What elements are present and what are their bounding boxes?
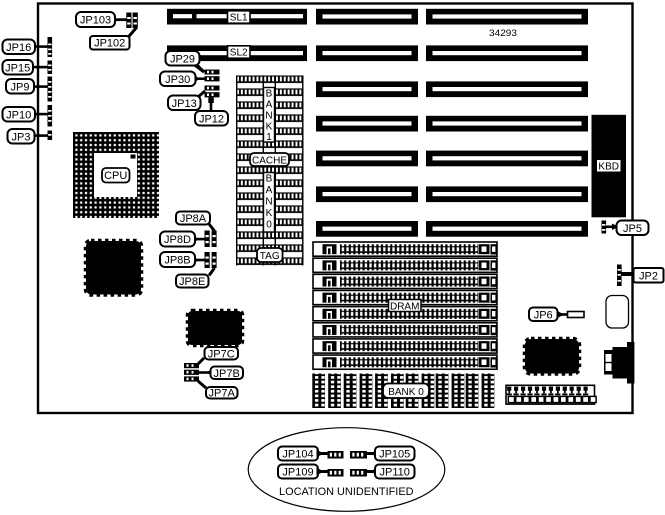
svg-text:34293: 34293	[489, 28, 517, 39]
svg-text:A: A	[266, 100, 273, 111]
svg-text:1: 1	[266, 132, 272, 143]
svg-text:JP5: JP5	[623, 223, 642, 235]
svg-text:JP8A: JP8A	[180, 213, 207, 225]
svg-text:SL2: SL2	[230, 48, 248, 59]
svg-text:DRAM: DRAM	[390, 301, 419, 312]
svg-text:JP8E: JP8E	[179, 276, 205, 288]
svg-text:JP104: JP104	[282, 449, 313, 461]
svg-text:JP110: JP110	[380, 467, 410, 479]
svg-text:KBD: KBD	[598, 162, 619, 173]
svg-text:A: A	[266, 185, 273, 196]
svg-text:LOCATION UNIDENTIFIED: LOCATION UNIDENTIFIED	[279, 486, 414, 498]
svg-text:JP2: JP2	[639, 270, 658, 282]
svg-text:K: K	[266, 208, 273, 219]
svg-text:JP15: JP15	[5, 62, 30, 74]
svg-text:TAG: TAG	[260, 251, 280, 262]
svg-text:JP29: JP29	[170, 53, 195, 65]
svg-text:JP9: JP9	[11, 81, 30, 93]
svg-text:BANK 0: BANK 0	[388, 387, 424, 398]
svg-text:JP103: JP103	[80, 15, 111, 27]
svg-text:B: B	[266, 174, 273, 185]
svg-text:CACHE: CACHE	[252, 155, 287, 166]
svg-text:JP8B: JP8B	[164, 255, 190, 267]
svg-text:N: N	[265, 111, 272, 122]
svg-text:JP7C: JP7C	[208, 348, 235, 360]
svg-text:JP109: JP109	[282, 467, 313, 479]
svg-text:B: B	[266, 89, 273, 100]
svg-text:JP30: JP30	[165, 74, 190, 86]
svg-text:JP105: JP105	[379, 449, 410, 461]
svg-text:JP8D: JP8D	[164, 234, 191, 246]
svg-text:JP3: JP3	[12, 131, 31, 143]
svg-text:JP102: JP102	[94, 38, 125, 50]
svg-text:N: N	[265, 197, 272, 208]
svg-text:CPU: CPU	[104, 170, 127, 182]
svg-text:SL1: SL1	[230, 13, 248, 24]
svg-text:JP13: JP13	[172, 98, 197, 110]
svg-text:JP12: JP12	[199, 113, 224, 125]
svg-text:JP16: JP16	[6, 42, 31, 54]
svg-text:0: 0	[266, 220, 272, 231]
svg-text:JP6: JP6	[534, 309, 553, 321]
svg-text:JP10: JP10	[6, 109, 31, 121]
svg-text:K: K	[266, 122, 273, 133]
svg-text:JP7A: JP7A	[209, 388, 236, 400]
svg-text:JP7B: JP7B	[214, 368, 240, 380]
